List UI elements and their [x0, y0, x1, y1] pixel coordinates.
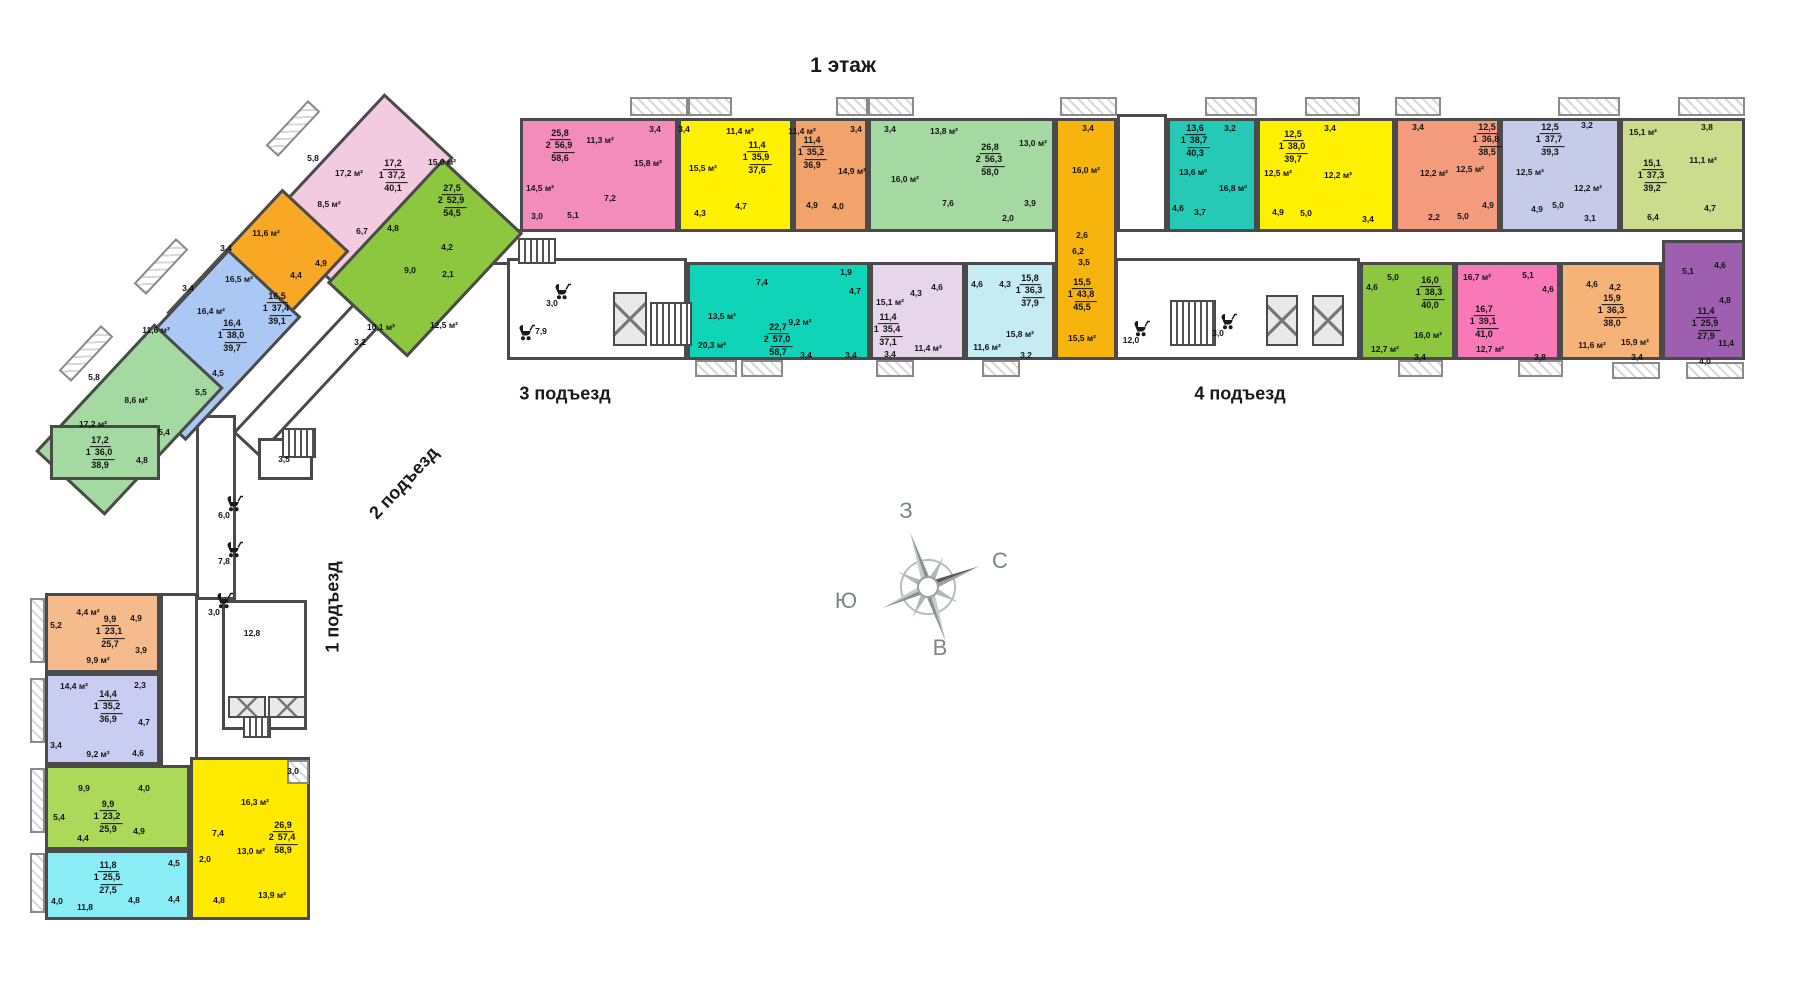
- room-area-label: 9,9 м²: [86, 656, 109, 665]
- balcony: [266, 100, 321, 157]
- room-area-label: 4,5: [168, 859, 180, 868]
- entrance-label: 2 подъезд: [365, 442, 443, 523]
- room-area-label: 12,2 м²: [1574, 184, 1602, 193]
- room-area-label: 8,5 м²: [317, 200, 340, 209]
- room-area-label: 3,4: [220, 244, 232, 253]
- room-area-label: 11,1 м²: [1689, 156, 1717, 165]
- apartment-summary: 11,4135,937,6: [743, 140, 772, 176]
- room-area-label: 5,4: [53, 813, 65, 822]
- room-area-label: 15,8 м²: [634, 159, 662, 168]
- room-area-label: 2,3: [134, 681, 146, 690]
- stairs-icon: [1170, 300, 1216, 346]
- room-area-label: 9,0: [404, 266, 416, 275]
- room-area-label: 3,4: [850, 125, 862, 134]
- compass-rose-icon: [863, 522, 993, 652]
- room-area-label: 4,4: [290, 271, 302, 280]
- apartment-summary: 16,4138,039,7: [218, 318, 247, 354]
- room-area-label: 12,0: [1123, 336, 1140, 345]
- room-area-label: 4,3: [694, 209, 706, 218]
- room-area-label: 5,4: [158, 428, 170, 437]
- room-area-label: 4,7: [735, 202, 747, 211]
- room-area-label: 8,6 м²: [124, 396, 147, 405]
- room-area-label: 3,0: [287, 767, 299, 776]
- room-area-label: 4,9: [315, 259, 327, 268]
- room-area-label: 5,8: [307, 154, 319, 163]
- room-area-label: 16,0 м²: [1414, 331, 1442, 340]
- entrance-label: 1 подъезд: [323, 561, 344, 652]
- balcony: [59, 325, 114, 382]
- balcony: [1060, 97, 1117, 116]
- room-area-label: 11,6 м²: [252, 229, 280, 238]
- room-area-label: 4,8: [136, 456, 148, 465]
- room-area-label: 11,8: [77, 903, 93, 912]
- balcony: [30, 598, 45, 663]
- room-area-label: 2,2: [1428, 213, 1440, 222]
- room-area-label: 5,1: [1522, 271, 1534, 280]
- room-area-label: 3,5: [1078, 258, 1090, 267]
- balcony: [134, 238, 189, 295]
- entrance-label: 4 подъезд: [1194, 384, 1285, 405]
- room-area-label: 4,6: [1586, 280, 1598, 289]
- floor-plan: 1 этаж 11,3 м²3,414,5 м²15,8 м²7,23,05,1…: [0, 0, 1800, 995]
- room-area-label: 3,4: [800, 351, 812, 360]
- room-area-label: 11,6 м²: [973, 343, 1001, 352]
- apartment-summary: 12,5138,039,7: [1279, 129, 1308, 165]
- apartment-summary: 17,2137,240,1: [379, 158, 408, 194]
- room-area-label: 3,2: [1020, 351, 1032, 360]
- room-area-label: 4,0: [832, 202, 844, 211]
- apartment-summary: 11,4135,236,9: [798, 135, 827, 171]
- balcony: [1612, 362, 1660, 379]
- room-area-label: 12,5 м²: [1516, 168, 1544, 177]
- room-area-label: 4,9: [1531, 205, 1543, 214]
- room-area-label: 5,0: [1552, 201, 1564, 210]
- room-area-label: 3,4: [182, 284, 194, 293]
- room-area-label: 7,2: [604, 194, 616, 203]
- room-area-label: 14,9 м²: [838, 167, 866, 176]
- room-area-label: 16,3 м²: [241, 798, 269, 807]
- room-area-label: 3,4: [1362, 215, 1374, 224]
- entrance-label: 3 подъезд: [519, 384, 610, 405]
- room-area-label: 4,6: [132, 749, 144, 758]
- apartment-summary: 11,4135,437,1: [874, 312, 903, 348]
- room-area-label: 12,5 м²: [430, 321, 458, 330]
- balcony: [688, 97, 732, 116]
- room-area-label: 5,5: [195, 388, 207, 397]
- room-area-label: 4,6: [1172, 204, 1184, 213]
- stroller-icon: [516, 322, 536, 342]
- room-area-label: 6,7: [356, 227, 368, 236]
- room-area-label: 3,2: [1581, 121, 1593, 130]
- room-area-label: 4,3: [910, 289, 922, 298]
- apartment-summary: 16,0138,340,0: [1416, 275, 1445, 311]
- room-area-label: 5,0: [1387, 273, 1399, 282]
- apartment-summary: 22,7257,058,7: [764, 322, 793, 358]
- room-area-label: 3,4: [1082, 124, 1094, 133]
- compass-direction: В: [933, 635, 948, 661]
- room-area-label: 13,6 м²: [1179, 168, 1207, 177]
- room-area-label: 10,1 м²: [367, 323, 395, 332]
- elevator-icon: [1266, 295, 1298, 346]
- room-area-label: 12,5 м²: [1456, 165, 1484, 174]
- apartment-summary: 12,5136,838,5: [1473, 122, 1502, 158]
- apartment-summary: 26,9257,458,9: [269, 820, 298, 856]
- apartment-summary: 15,8136,337,9: [1016, 273, 1045, 309]
- room-area-label: 3,4: [1324, 124, 1336, 133]
- room-area-label: 5,1: [1682, 267, 1694, 276]
- balcony: [630, 97, 688, 116]
- apartment-summary: 27,5252,954,5: [438, 183, 467, 219]
- room-area-label: 6,0: [218, 511, 230, 520]
- stairs-icon: [243, 716, 271, 738]
- apartment-summary: 14,4135,236,9: [94, 689, 123, 725]
- room-area-label: 3,5: [278, 455, 290, 464]
- room-area-label: 14,4 м²: [60, 682, 88, 691]
- room-area-label: 2,1: [442, 270, 454, 279]
- room-area-label: 4,0: [138, 784, 150, 793]
- room-area-label: 3,0: [208, 608, 220, 617]
- room-area-label: 7,8: [218, 557, 230, 566]
- room-area-label: 7,6: [942, 199, 954, 208]
- room-area-label: 2,0: [1002, 214, 1014, 223]
- room-area-label: 12,8: [244, 629, 261, 638]
- apartment-summary: 17,2136,038,9: [86, 435, 115, 471]
- room-area-label: 6,4: [1647, 213, 1659, 222]
- room-area-label: 14,5 м²: [526, 184, 554, 193]
- compass-direction: Ю: [835, 588, 857, 614]
- room-area-label: 4,7: [138, 718, 150, 727]
- room-area-label: 4,4: [77, 834, 89, 843]
- room-area-label: 4,8: [213, 896, 225, 905]
- room-area-label: 4,8: [1719, 296, 1731, 305]
- room-area-label: 4,0: [51, 897, 63, 906]
- room-area-label: 11,6 м²: [1578, 341, 1606, 350]
- balcony: [1678, 97, 1745, 116]
- room-area-label: 5,2: [50, 621, 62, 630]
- apartment-summary: 15,9136,338,0: [1598, 293, 1627, 329]
- room-area-label: 11,4 м²: [726, 127, 754, 136]
- room-area-label: 11,6 м²: [142, 326, 170, 335]
- balcony: [695, 360, 737, 377]
- room-area-label: 16,7 м²: [1463, 273, 1491, 282]
- room-area-label: 3,1: [1584, 214, 1596, 223]
- room-area-label: 4,8: [387, 224, 399, 233]
- apartment-summary: 16,7139,141,0: [1470, 304, 1499, 340]
- room-area-label: 4,6: [931, 283, 943, 292]
- balcony: [1558, 97, 1620, 116]
- room-area-label: 4,6: [1714, 261, 1726, 270]
- room-area-label: 16,0 м²: [1072, 166, 1100, 175]
- room-area-label: 3,0: [546, 299, 558, 308]
- room-area-label: 15,5 м²: [689, 164, 717, 173]
- apartment-summary: 11,4125,927,9: [1692, 306, 1721, 342]
- room-area-label: 11,4 м²: [914, 344, 942, 353]
- elevator-icon: [1312, 295, 1344, 346]
- room-area-label: 15,1 м²: [876, 298, 904, 307]
- room-area-label: 12,5 м²: [1264, 169, 1292, 178]
- room-area-label: 4,9: [806, 201, 818, 210]
- room-area-label: 11,3 м²: [586, 136, 614, 145]
- apartment-summary: 11,8125,527,5: [94, 860, 123, 896]
- room-area-label: 16,8 м²: [1219, 184, 1247, 193]
- apartment-summary: 26,8256,358,0: [976, 142, 1005, 178]
- room-area-label: 15,1 м²: [1629, 128, 1657, 137]
- room-area-label: 3,8: [1534, 353, 1546, 362]
- floor-title: 1 этаж: [810, 54, 876, 78]
- apartment-summary: 9,9123,125,7: [96, 614, 125, 650]
- balcony: [30, 768, 45, 833]
- apartment-summary: 25,8256,958,6: [546, 128, 575, 164]
- room-area-label: 3,7: [1194, 208, 1206, 217]
- room-area-label: 4,0: [1699, 357, 1711, 366]
- room-area-label: 17,2 м²: [79, 420, 107, 429]
- room-area-label: 16,4 м²: [197, 307, 225, 316]
- balcony: [30, 853, 45, 913]
- room-area-label: 6,2: [1072, 247, 1084, 256]
- room-area-label: 13,0 м²: [237, 847, 265, 856]
- room-area-label: 4,2: [441, 243, 453, 252]
- room-area-label: 20,3 м²: [698, 341, 726, 350]
- room-area-label: 4,6: [971, 280, 983, 289]
- room-area-label: 3,4: [884, 125, 896, 134]
- room-area-label: 12,2 м²: [1420, 169, 1448, 178]
- room-area-label: 15,8 м²: [1006, 330, 1034, 339]
- room-area-label: 3,4: [678, 125, 690, 134]
- room-area-label: 13,5 м²: [708, 312, 736, 321]
- room-area-label: 3,4: [845, 351, 857, 360]
- room-area-label: 7,4: [756, 278, 768, 287]
- room-area-label: 4,9: [1482, 201, 1494, 210]
- room-area-label: 3,4: [50, 741, 62, 750]
- room-area-label: 3,2: [1224, 124, 1236, 133]
- apartment-summary: 13,6138,740,3: [1181, 123, 1210, 159]
- room-area-label: 13,8 м²: [930, 127, 958, 136]
- room-area-label: 4,6: [1542, 285, 1554, 294]
- room-area-label: 16,5 м²: [225, 275, 253, 284]
- room-area-label: 4,7: [1704, 204, 1716, 213]
- room-area-label: 4,6: [1366, 283, 1378, 292]
- room-area-label: 4,9: [133, 827, 145, 836]
- balcony: [1398, 360, 1443, 377]
- room-area-label: 9,2 м²: [86, 750, 109, 759]
- room-area-label: 5,1: [567, 211, 579, 220]
- room-area-label: 4,8: [128, 896, 140, 905]
- room-area-label: 3,8: [1701, 123, 1713, 132]
- apartment-summary: 15,5143,845,5: [1068, 277, 1097, 313]
- room-area-label: 3,4: [884, 350, 896, 359]
- elevator-icon: [228, 696, 266, 718]
- room-area-label: 7,4: [212, 829, 224, 838]
- room-area-label: 15,9 м²: [1621, 338, 1649, 347]
- balcony: [876, 360, 914, 377]
- apartment-summary: 16,5137,439,1: [263, 291, 292, 327]
- room-area-label: 4,7: [849, 287, 861, 296]
- stairs-icon: [518, 238, 556, 264]
- room-area-label: 1,9: [840, 268, 852, 277]
- balcony: [30, 678, 45, 743]
- apartment-summary: 15,1137,339,2: [1638, 158, 1667, 194]
- room-area-label: 12,2 м²: [1324, 171, 1352, 180]
- stairs-icon: [650, 302, 692, 346]
- room-area-label: 5,0: [1300, 209, 1312, 218]
- room-area-label: 3,4: [1412, 123, 1424, 132]
- balcony: [1305, 97, 1360, 116]
- balcony: [741, 360, 783, 377]
- balcony: [1518, 360, 1563, 377]
- elevator-icon: [613, 292, 647, 346]
- room-area-label: 3,0: [531, 212, 543, 221]
- room-area-label: 5,0: [1457, 212, 1469, 221]
- balcony: [1686, 362, 1744, 379]
- room-area-label: 4,5: [212, 369, 224, 378]
- room-area-label: 4,9: [130, 614, 142, 623]
- room-area-label: 11,4: [1718, 339, 1734, 348]
- entrance4-top-gap: [1117, 114, 1167, 232]
- apartment-summary: 9,9123,225,9: [94, 799, 123, 835]
- room-area-label: 12,7 м²: [1476, 345, 1504, 354]
- room-area-label: 9,9: [78, 784, 90, 793]
- room-area-label: 3,4: [1631, 353, 1643, 362]
- compass-direction: С: [992, 548, 1008, 574]
- room-area-label: 3,9: [135, 646, 147, 655]
- room-area-label: 12,7 м²: [1371, 345, 1399, 354]
- room-area-label: 4,2: [1609, 283, 1621, 292]
- room-area-label: 11,4 м²: [788, 127, 816, 136]
- room-area-label: 15,0 м²: [428, 158, 456, 167]
- room-area-label: 16,0 м²: [891, 175, 919, 184]
- room-area-label: 7,9: [535, 327, 547, 336]
- balcony: [1395, 97, 1441, 116]
- room-area-label: 15,5 м²: [1068, 334, 1096, 343]
- compass-direction: З: [899, 498, 912, 524]
- room-area-label: 13,9 м²: [258, 891, 286, 900]
- room-area-label: 17,2 м²: [335, 169, 363, 178]
- room-area-label: 13,0 м²: [1019, 139, 1047, 148]
- room-area-label: 3,9: [1024, 199, 1036, 208]
- room-area-label: 3,2: [354, 338, 366, 347]
- room-area-label: 2,6: [1076, 231, 1088, 240]
- balcony: [836, 97, 868, 116]
- room-area-label: 5,8: [88, 373, 100, 382]
- room-area-label: 3,4: [1414, 353, 1426, 362]
- balcony: [982, 360, 1020, 377]
- room-area-label: 3,0: [1212, 329, 1224, 338]
- balcony: [868, 97, 914, 116]
- balcony: [1205, 97, 1257, 116]
- room-area-label: 4,4: [168, 895, 180, 904]
- apartment-summary: 12,5137,739,3: [1536, 122, 1565, 158]
- room-area-label: 4,3: [999, 280, 1011, 289]
- room-area-label: 4,9: [1272, 208, 1284, 217]
- room-area-label: 2,0: [199, 855, 211, 864]
- elevator-icon: [268, 696, 306, 718]
- room-area-label: 3,4: [649, 125, 661, 134]
